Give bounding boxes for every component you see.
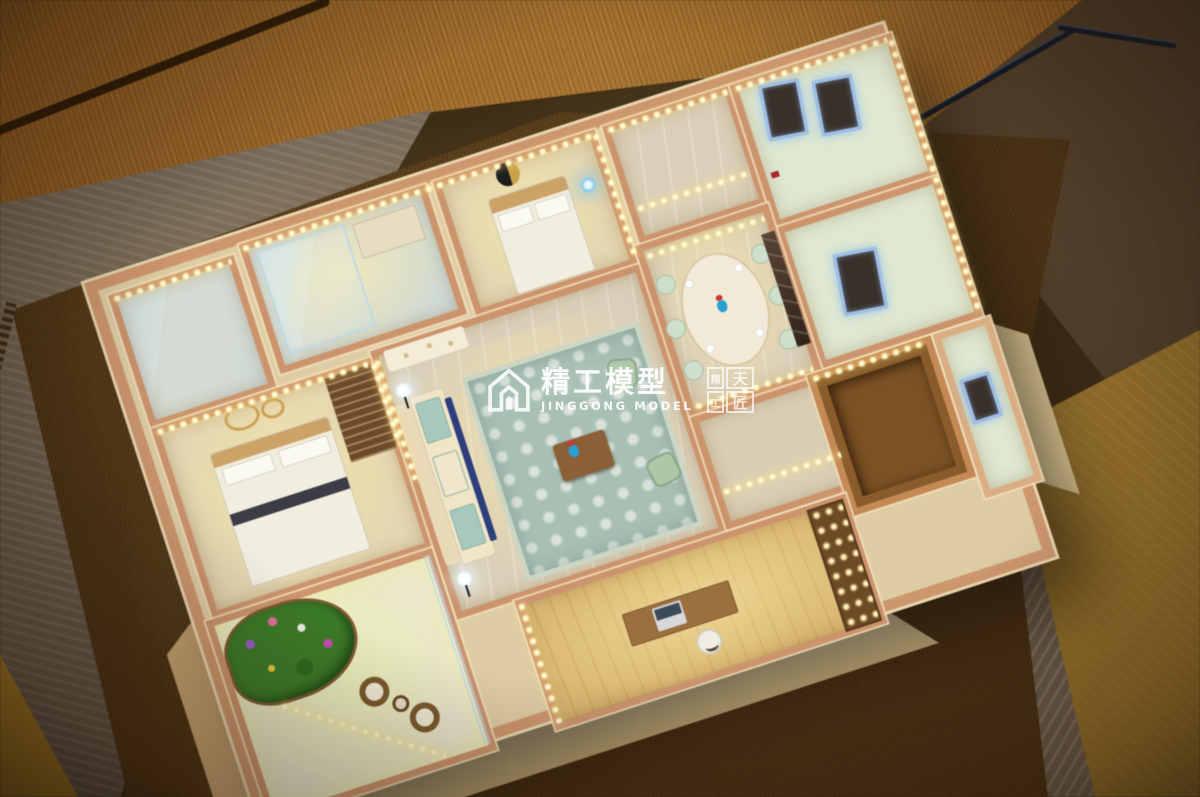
seal-char: 天: [726, 367, 754, 389]
seal-char: 匠: [726, 391, 754, 413]
brand-seal-stamp: 精 工 天 匠: [707, 367, 754, 413]
watermark: 精工模型 JINGGONG MODEL 精 工 天 匠: [488, 366, 754, 414]
bed-runner: [230, 477, 351, 526]
photo-of-architectural-model: 精工模型 JINGGONG MODEL 精 工 天 匠: [0, 0, 1200, 797]
brand-logo-house-icon: [488, 366, 530, 414]
brand-name-english: JINGGONG MODEL: [541, 399, 693, 413]
brand-name-chinese: 精工模型: [541, 367, 693, 397]
seal-char: 工: [707, 391, 724, 413]
seal-char: 精: [707, 367, 724, 389]
closet-box-interior: [827, 356, 956, 497]
brand-text: 精工模型 JINGGONG MODEL: [541, 367, 693, 413]
